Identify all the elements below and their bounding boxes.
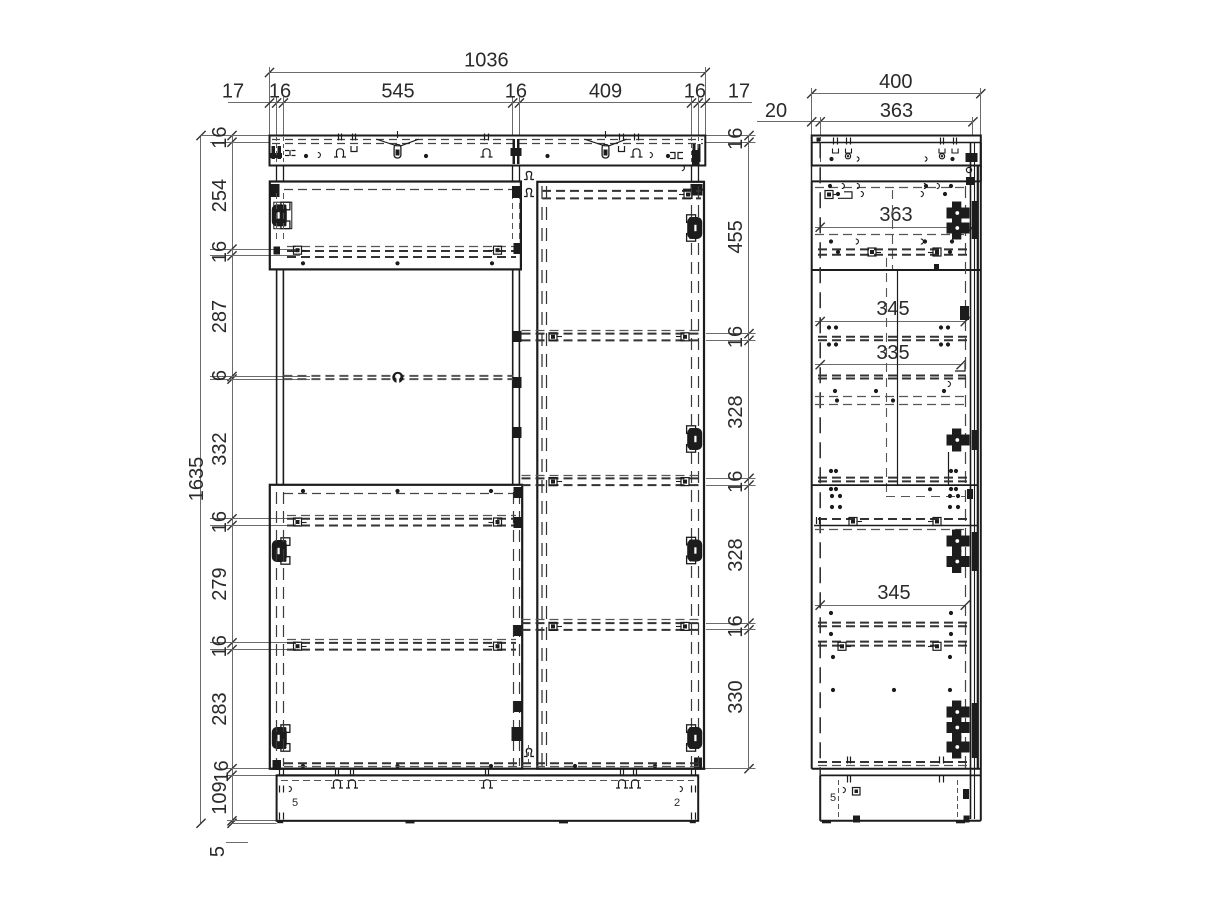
- svg-text:345: 345: [876, 298, 909, 320]
- svg-text:545: 545: [381, 81, 414, 103]
- svg-text:363: 363: [880, 100, 913, 122]
- svg-text:16: 16: [209, 511, 231, 533]
- svg-text:5: 5: [830, 792, 836, 804]
- svg-text:279: 279: [209, 567, 231, 600]
- svg-text:20: 20: [765, 100, 787, 122]
- svg-text:17: 17: [222, 81, 244, 103]
- svg-text:2: 2: [674, 797, 680, 809]
- svg-text:16: 16: [269, 81, 291, 103]
- svg-text:409: 409: [589, 81, 622, 103]
- svg-text:5: 5: [207, 846, 229, 857]
- svg-text:17: 17: [728, 81, 750, 103]
- svg-text:5: 5: [292, 797, 298, 809]
- svg-text:16: 16: [505, 81, 527, 103]
- svg-text:328: 328: [725, 395, 747, 428]
- svg-text:345: 345: [877, 582, 910, 604]
- svg-text:16: 16: [725, 326, 747, 348]
- svg-text:16: 16: [725, 128, 747, 150]
- svg-text:16: 16: [209, 126, 231, 148]
- svg-text:283: 283: [209, 692, 231, 725]
- svg-text:109: 109: [209, 781, 231, 814]
- svg-text:16: 16: [725, 471, 747, 493]
- svg-text:16: 16: [684, 81, 706, 103]
- svg-text:16: 16: [209, 241, 231, 263]
- svg-text:16: 16: [725, 615, 747, 637]
- svg-text:254: 254: [209, 179, 231, 212]
- svg-text:332: 332: [209, 432, 231, 465]
- svg-text:335: 335: [876, 342, 909, 364]
- svg-text:400: 400: [879, 71, 912, 93]
- svg-text:363: 363: [879, 204, 912, 226]
- svg-text:6: 6: [209, 370, 231, 381]
- svg-text:1036: 1036: [464, 50, 509, 72]
- svg-text:328: 328: [725, 538, 747, 571]
- svg-text:1635: 1635: [186, 457, 208, 502]
- svg-text:455: 455: [725, 220, 747, 253]
- svg-text:287: 287: [209, 300, 231, 333]
- svg-text:16: 16: [211, 760, 233, 782]
- svg-text:330: 330: [725, 680, 747, 713]
- svg-text:16: 16: [209, 635, 231, 657]
